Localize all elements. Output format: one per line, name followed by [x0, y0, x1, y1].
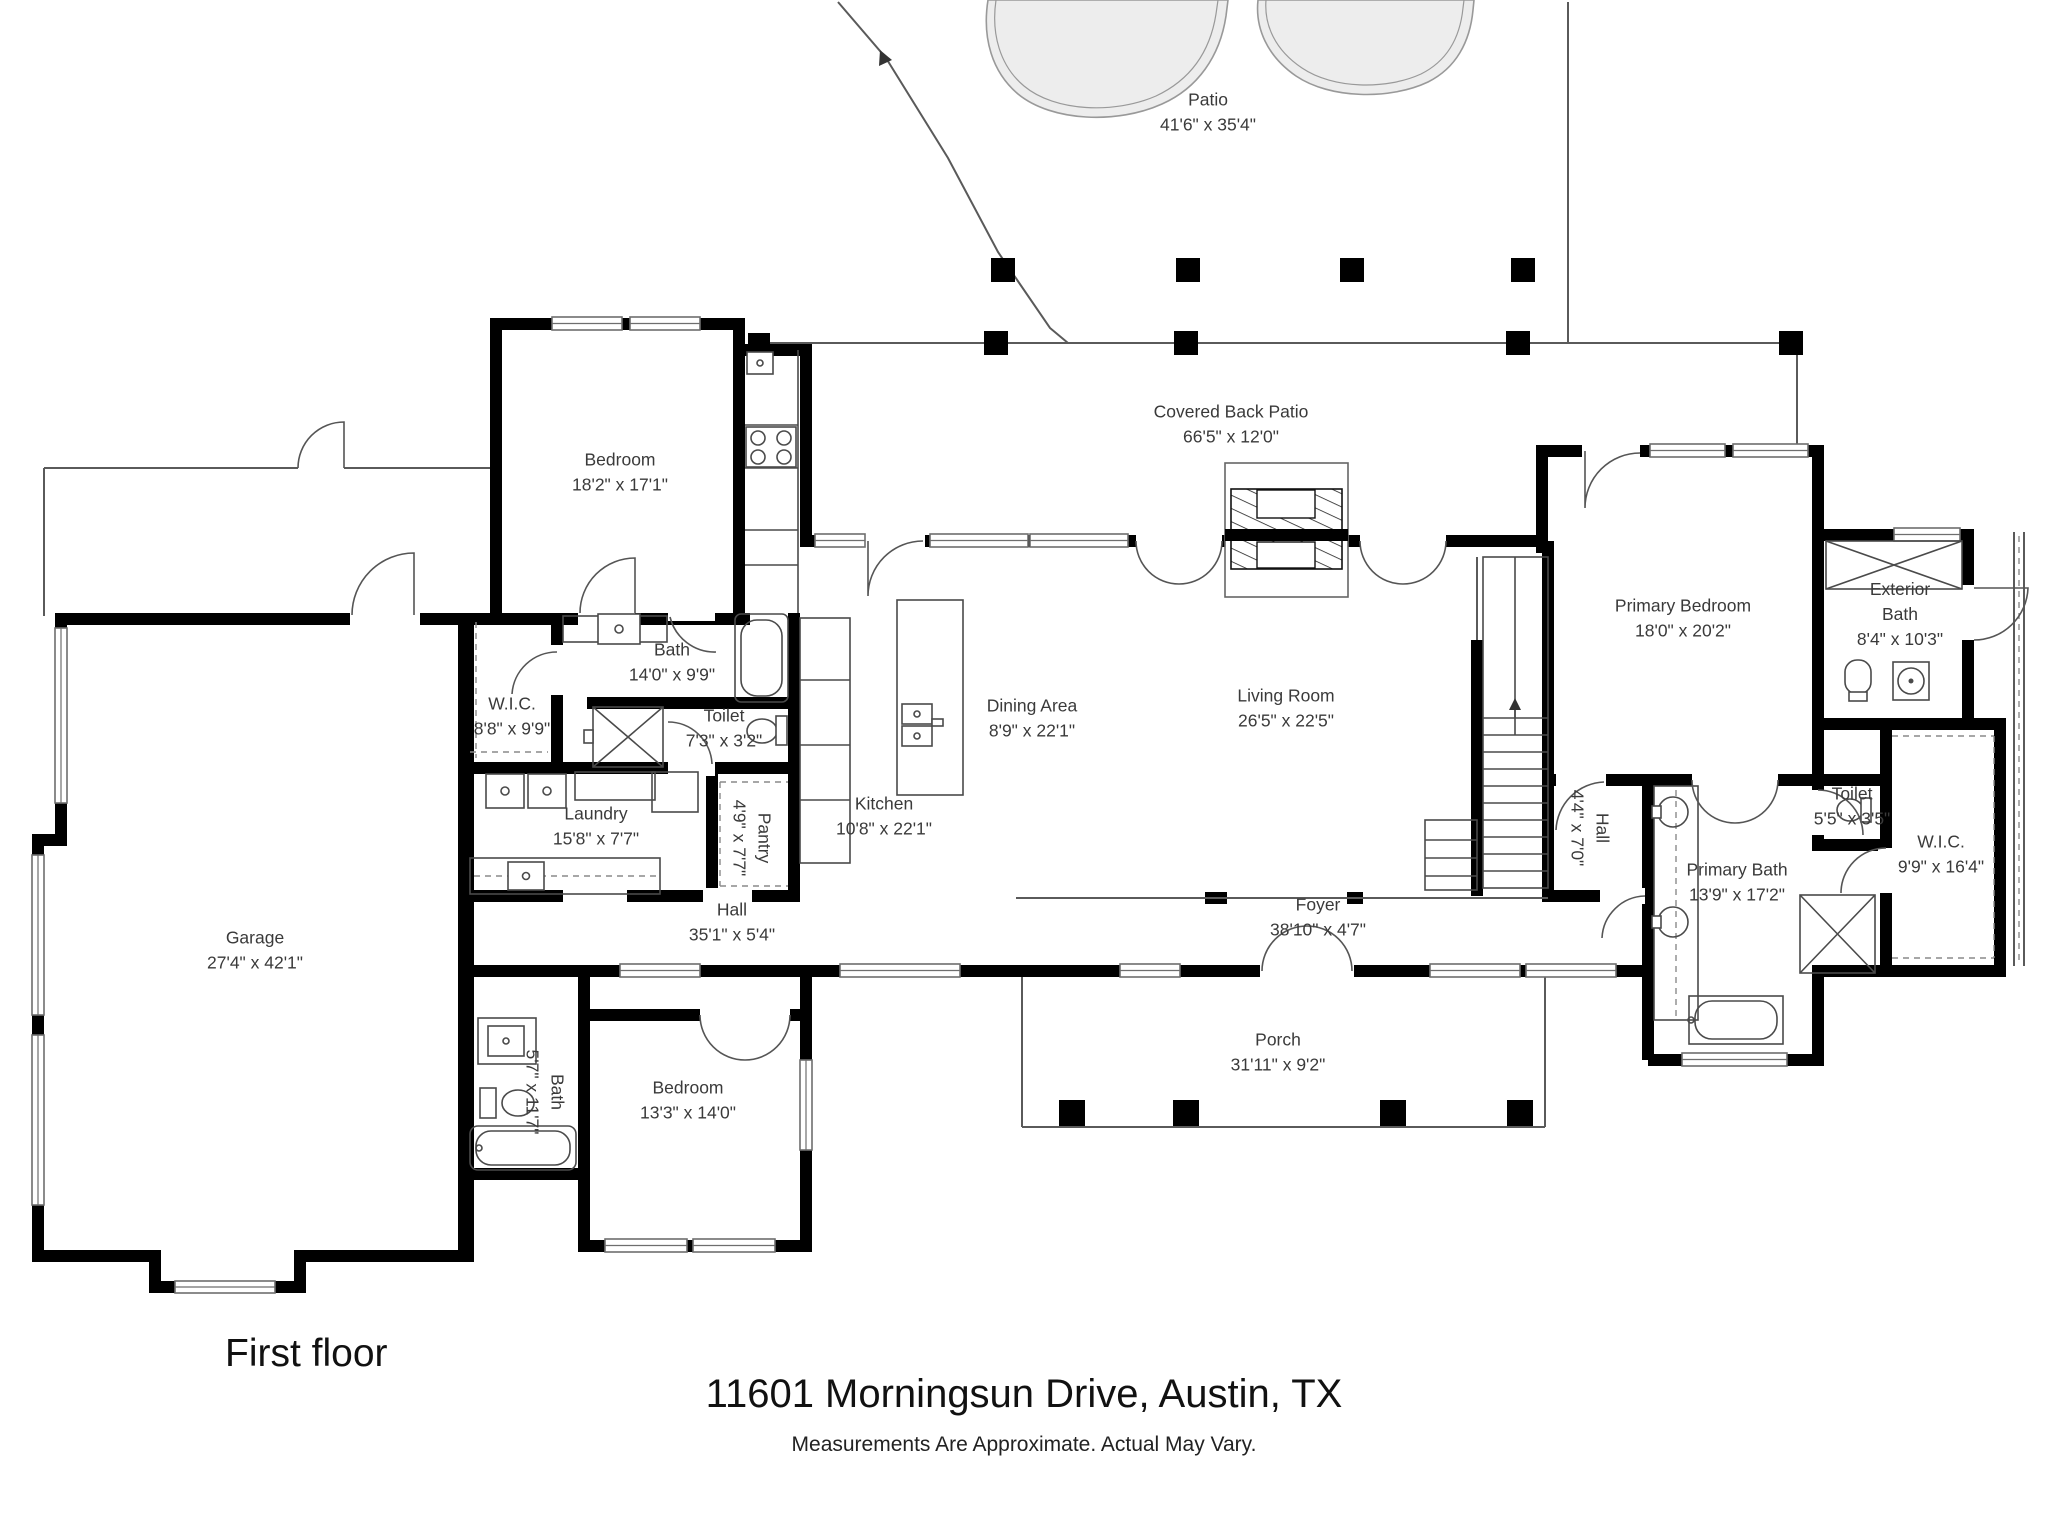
- floor-plan: Patio41'6" x 35'4"Covered Back Patio66'5…: [0, 0, 2048, 1536]
- room-label-primary-bath: Primary Bath13'9" x 17'2": [1686, 860, 1787, 905]
- shower-valve: [584, 730, 593, 743]
- understair-closet: [1425, 820, 1477, 890]
- pool-shape-right: [1258, 0, 1474, 94]
- upper-bedroom-door: [580, 558, 635, 613]
- exterior-bath-door: [1974, 588, 2028, 640]
- toilet: [1845, 660, 1871, 694]
- garage-entry-door: [352, 553, 414, 615]
- island-faucet: [932, 719, 943, 726]
- floor-label: First floor: [225, 1332, 388, 1376]
- windows: [32, 317, 1960, 1293]
- floor-plan-page: { "title": "11601 Morningsun Drive, Aust…: [0, 0, 2048, 1536]
- room-label-bath-lower: Bath5'7" x 11'7": [523, 1050, 568, 1135]
- kitchen-island: [897, 600, 963, 795]
- room-label-laundry: Laundry15'8" x 7'7": [553, 804, 639, 849]
- door-openings: [350, 443, 1976, 1023]
- address-title: 11601 Morningsun Drive, Austin, TX: [0, 1372, 2048, 1417]
- patio-pillars: [748, 258, 1803, 355]
- room-label-wic-primary: W.I.C.9'9" x 16'4": [1898, 832, 1984, 877]
- stairs-up-arrow: [1509, 698, 1521, 710]
- staircase: [1425, 557, 1548, 890]
- porch-pillars: [1059, 1100, 1533, 1126]
- room-label-bath-upper: Bath14'0" x 9'9": [629, 640, 715, 685]
- room-label-dining-area: Dining Area8'9" x 22'1": [987, 696, 1078, 741]
- wic-left-door: [512, 652, 557, 694]
- room-label-bedroom-upper: Bedroom18'2" x 17'1": [572, 450, 668, 495]
- kitchen-patio-door: [868, 541, 923, 596]
- room-label-pantry: Pantry4'9" x 7'7": [730, 800, 775, 877]
- primary-bedroom-patio-door: [1585, 451, 1640, 508]
- room-label-bedroom-lower: Bedroom13'3" x 14'0": [640, 1078, 736, 1123]
- disclaimer: Measurements Are Approximate. Actual May…: [0, 1433, 2048, 1457]
- gate-door-arc: [298, 422, 344, 468]
- room-label-hall-primary: Hall4'4" x 7'0": [1568, 790, 1613, 867]
- room-label-wic-left: W.I.C.8'8" x 9'9": [474, 694, 551, 739]
- room-label-porch: Porch31'11" x 9'2": [1231, 1030, 1326, 1075]
- walls: [32, 318, 2006, 1287]
- fireplace: [1225, 463, 1348, 597]
- room-label-primary-bedroom: Primary Bedroom18'0" x 20'2": [1615, 596, 1751, 641]
- patio-area: [44, 0, 2024, 1127]
- room-label-covered-back-patio: Covered Back Patio66'5" x 12'0": [1154, 402, 1309, 447]
- room-label-hall-main: Hall35'1" x 5'4": [689, 900, 775, 945]
- room-label-garage: Garage27'4" x 42'1": [207, 928, 303, 973]
- room-label-living-room: Living Room26'5" x 22'5": [1237, 686, 1334, 731]
